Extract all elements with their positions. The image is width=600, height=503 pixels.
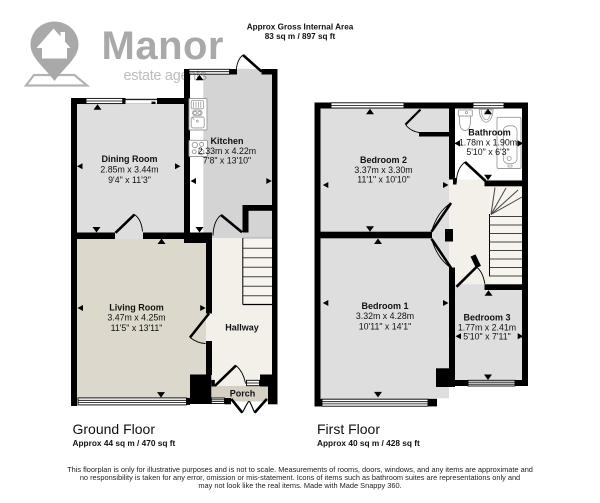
- svg-text:83 sq m / 897 sq ft: 83 sq m / 897 sq ft: [265, 32, 336, 41]
- svg-text:may not look like the real ite: may not look like the real items. Made w…: [198, 481, 401, 490]
- svg-text:Living Room: Living Room: [109, 302, 164, 312]
- svg-text:Approx 40 sq m / 428 sq ft: Approx 40 sq m / 428 sq ft: [317, 438, 420, 448]
- svg-text:Porch: Porch: [230, 388, 256, 398]
- svg-text:Manor: Manor: [102, 24, 225, 68]
- svg-text:3.32m x 4.28m: 3.32m x 4.28m: [356, 311, 414, 321]
- svg-text:Bedroom 3: Bedroom 3: [463, 313, 510, 323]
- svg-text:5'10" x 7'11": 5'10" x 7'11": [463, 332, 511, 342]
- svg-text:Bedroom 2: Bedroom 2: [360, 155, 407, 165]
- svg-text:Dining Room: Dining Room: [102, 154, 158, 164]
- svg-text:Approx Gross Internal Area: Approx Gross Internal Area: [247, 23, 354, 32]
- svg-text:2.85m x 3.44m: 2.85m x 3.44m: [100, 164, 158, 174]
- svg-text:3.47m x 4.25m: 3.47m x 4.25m: [107, 313, 165, 323]
- svg-text:3.37m x 3.30m: 3.37m x 3.30m: [354, 165, 412, 175]
- svg-text:11'1" x 10'10": 11'1" x 10'10": [357, 175, 410, 185]
- svg-text:9'4" x 11'3": 9'4" x 11'3": [108, 175, 151, 185]
- svg-text:Hallway: Hallway: [225, 322, 259, 332]
- svg-text:10'11" x 14'1": 10'11" x 14'1": [359, 322, 412, 332]
- svg-text:7'8" x 13'10": 7'8" x 13'10": [203, 155, 251, 165]
- svg-text:11'5" x 13'11": 11'5" x 13'11": [111, 323, 163, 333]
- svg-text:Bedroom 1: Bedroom 1: [361, 301, 408, 311]
- svg-text:Approx 44 sq m / 470 sq ft: Approx 44 sq m / 470 sq ft: [73, 438, 176, 448]
- svg-text:Bathroom: Bathroom: [468, 128, 511, 138]
- svg-text:2.33m x 4.22m: 2.33m x 4.22m: [198, 146, 256, 156]
- svg-text:5'10" x 6'3": 5'10" x 6'3": [466, 147, 509, 157]
- svg-text:Ground Floor: Ground Floor: [73, 421, 156, 437]
- svg-text:1.78m x 1.90m: 1.78m x 1.90m: [459, 137, 517, 147]
- svg-text:First Floor: First Floor: [317, 421, 380, 437]
- svg-text:estate agents: estate agents: [124, 68, 207, 84]
- svg-text:Kitchen: Kitchen: [210, 136, 243, 146]
